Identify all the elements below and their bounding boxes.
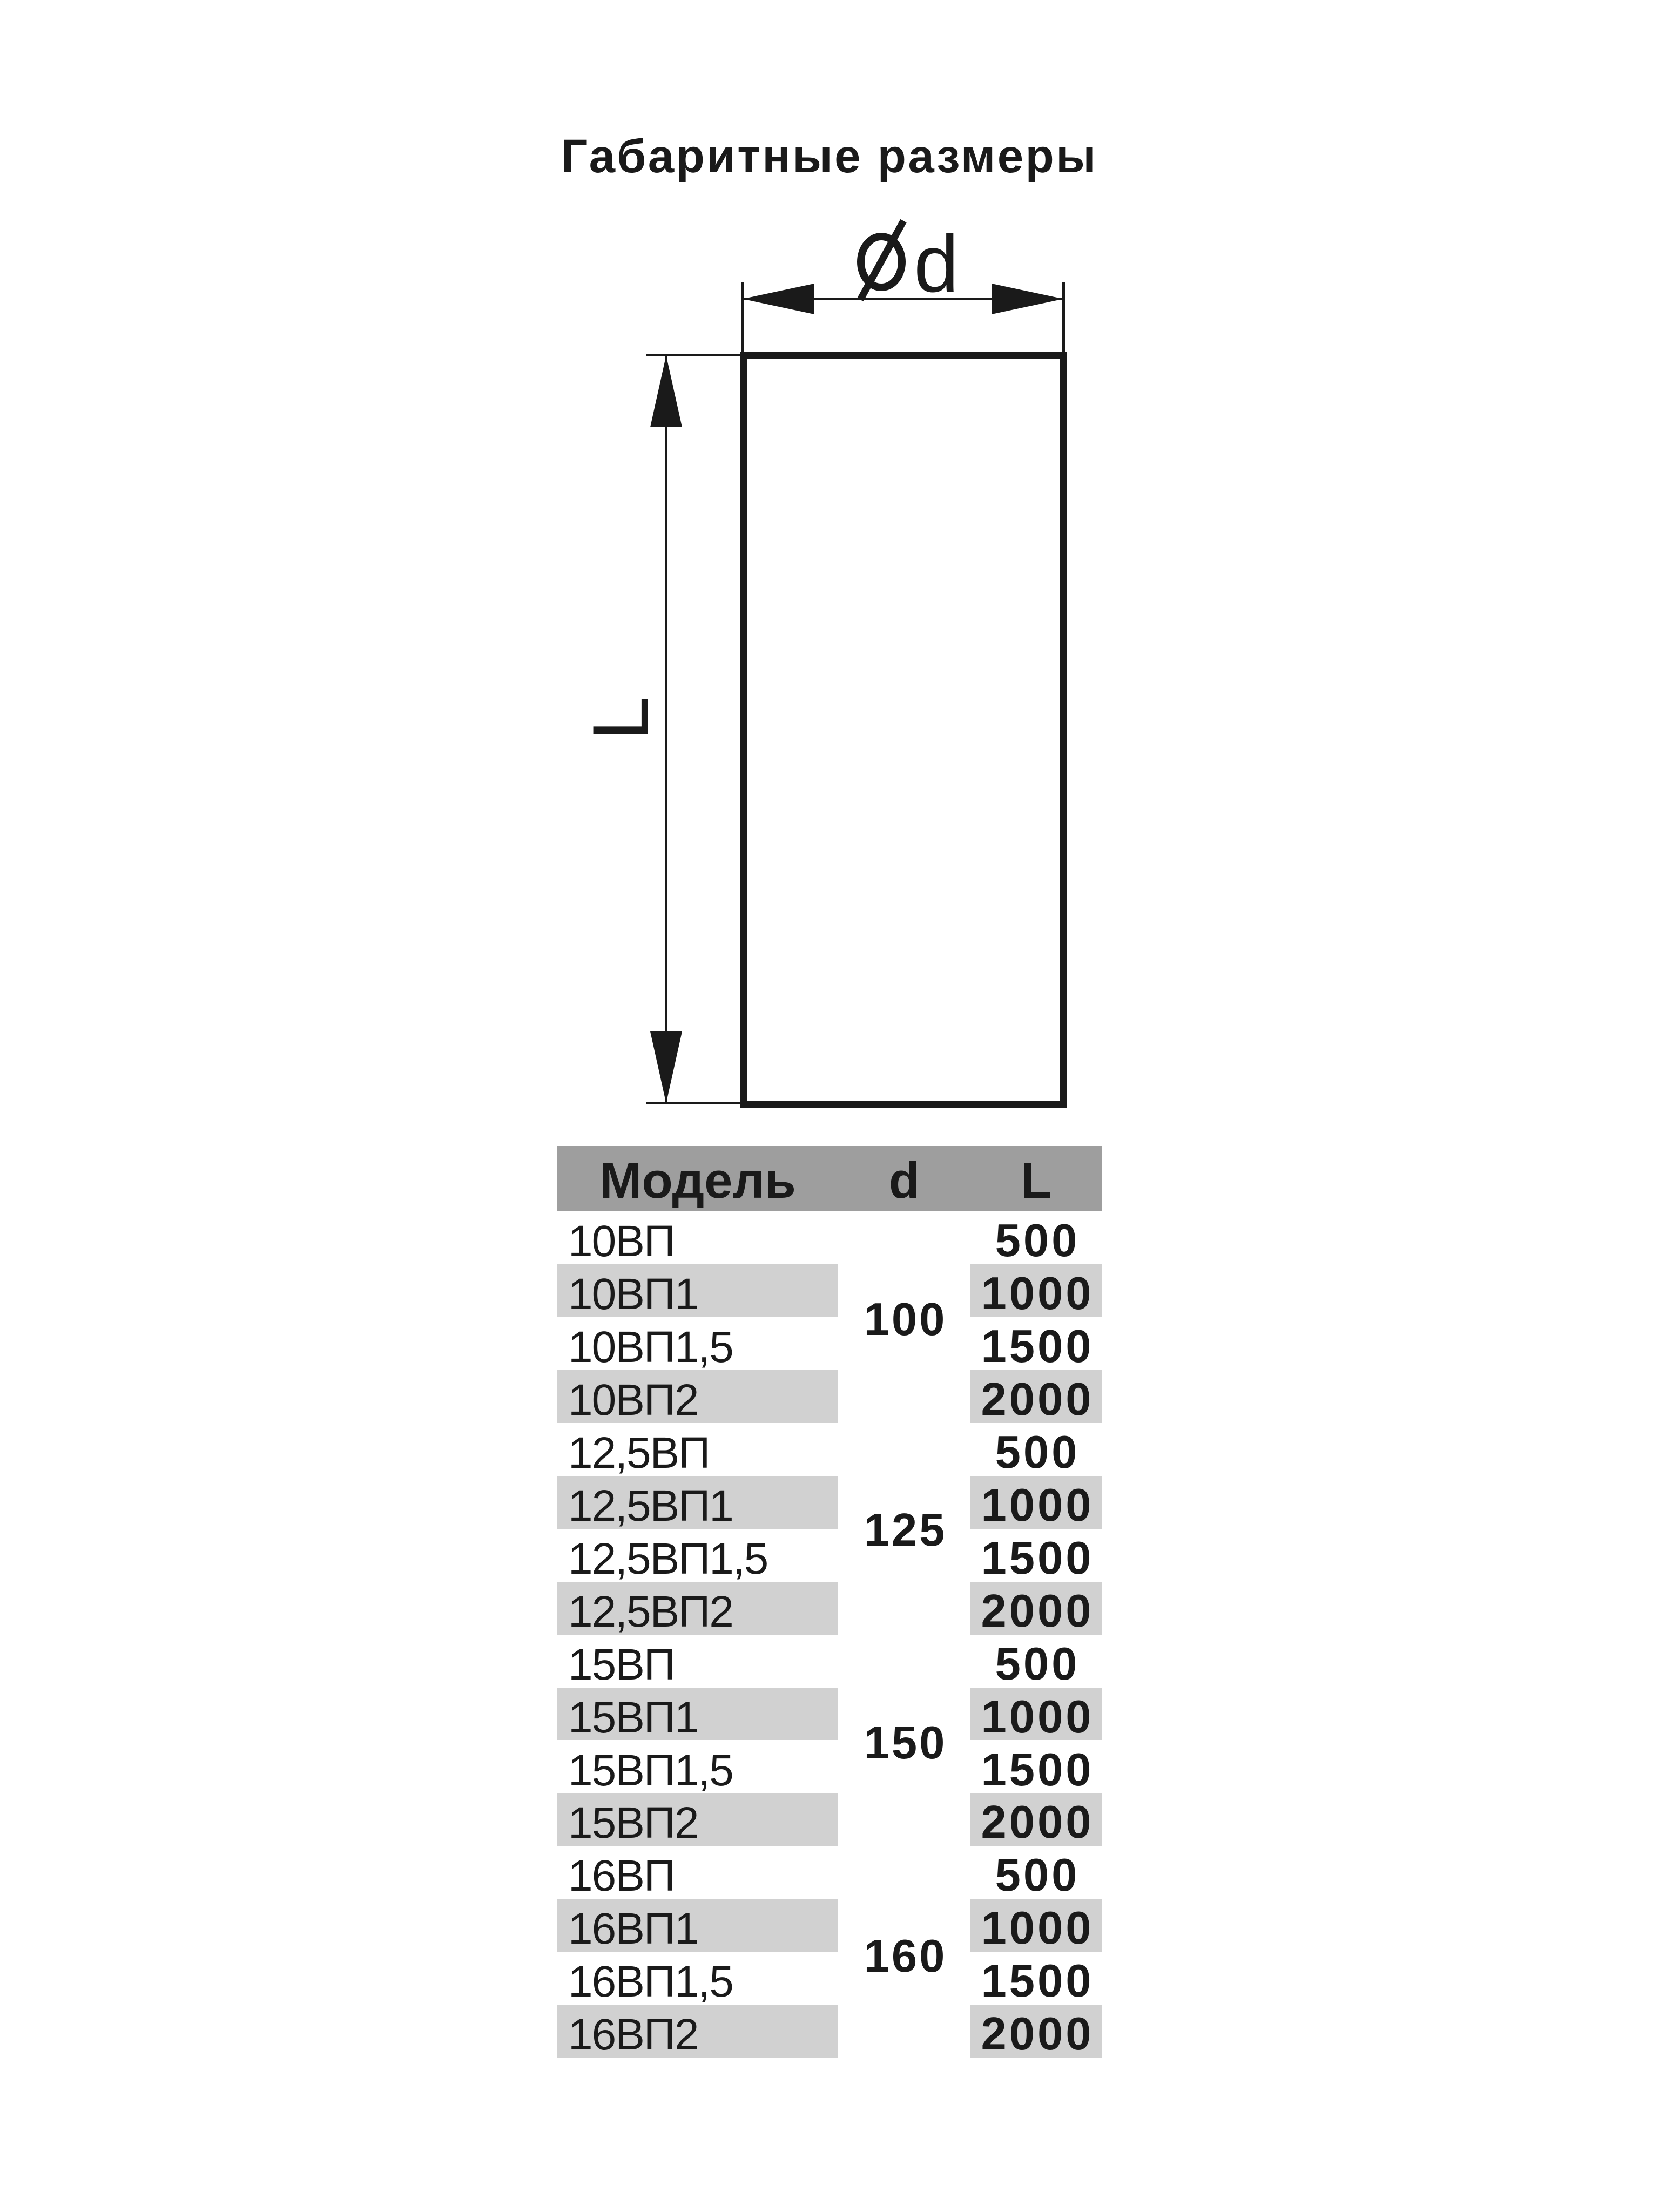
svg-text:d: d [914,218,959,309]
svg-text:L: L [576,697,664,740]
